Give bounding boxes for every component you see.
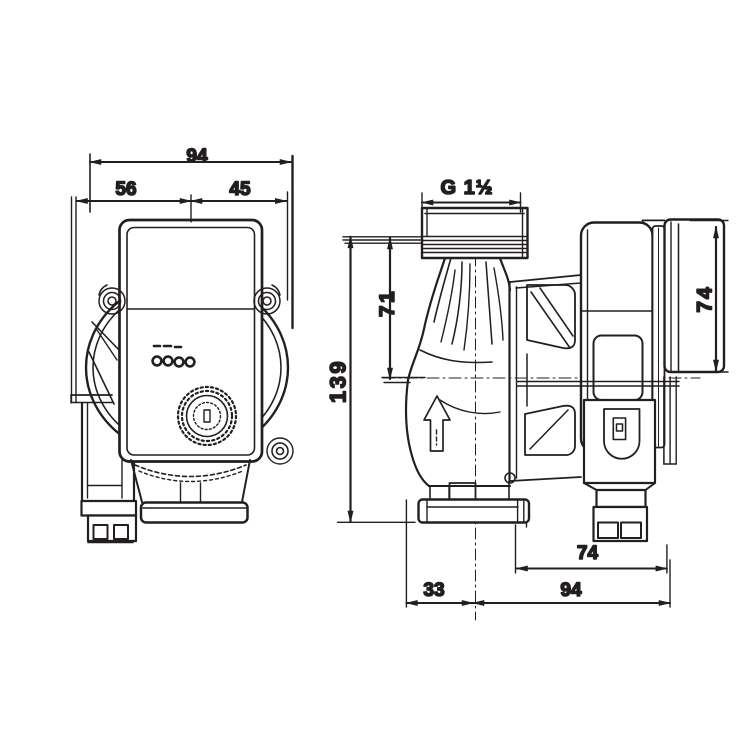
svg-text:71: 71 [376,289,399,317]
svg-text:74: 74 [694,285,717,312]
svg-text:56: 56 [115,179,136,200]
svg-text:33: 33 [423,580,444,601]
svg-text:94: 94 [186,146,208,167]
svg-text:45: 45 [229,179,251,200]
svg-text:94: 94 [560,580,582,601]
svg-text:74: 74 [577,543,599,564]
svg-text:G 1½: G 1½ [441,177,494,199]
svg-text:139: 139 [326,359,351,403]
